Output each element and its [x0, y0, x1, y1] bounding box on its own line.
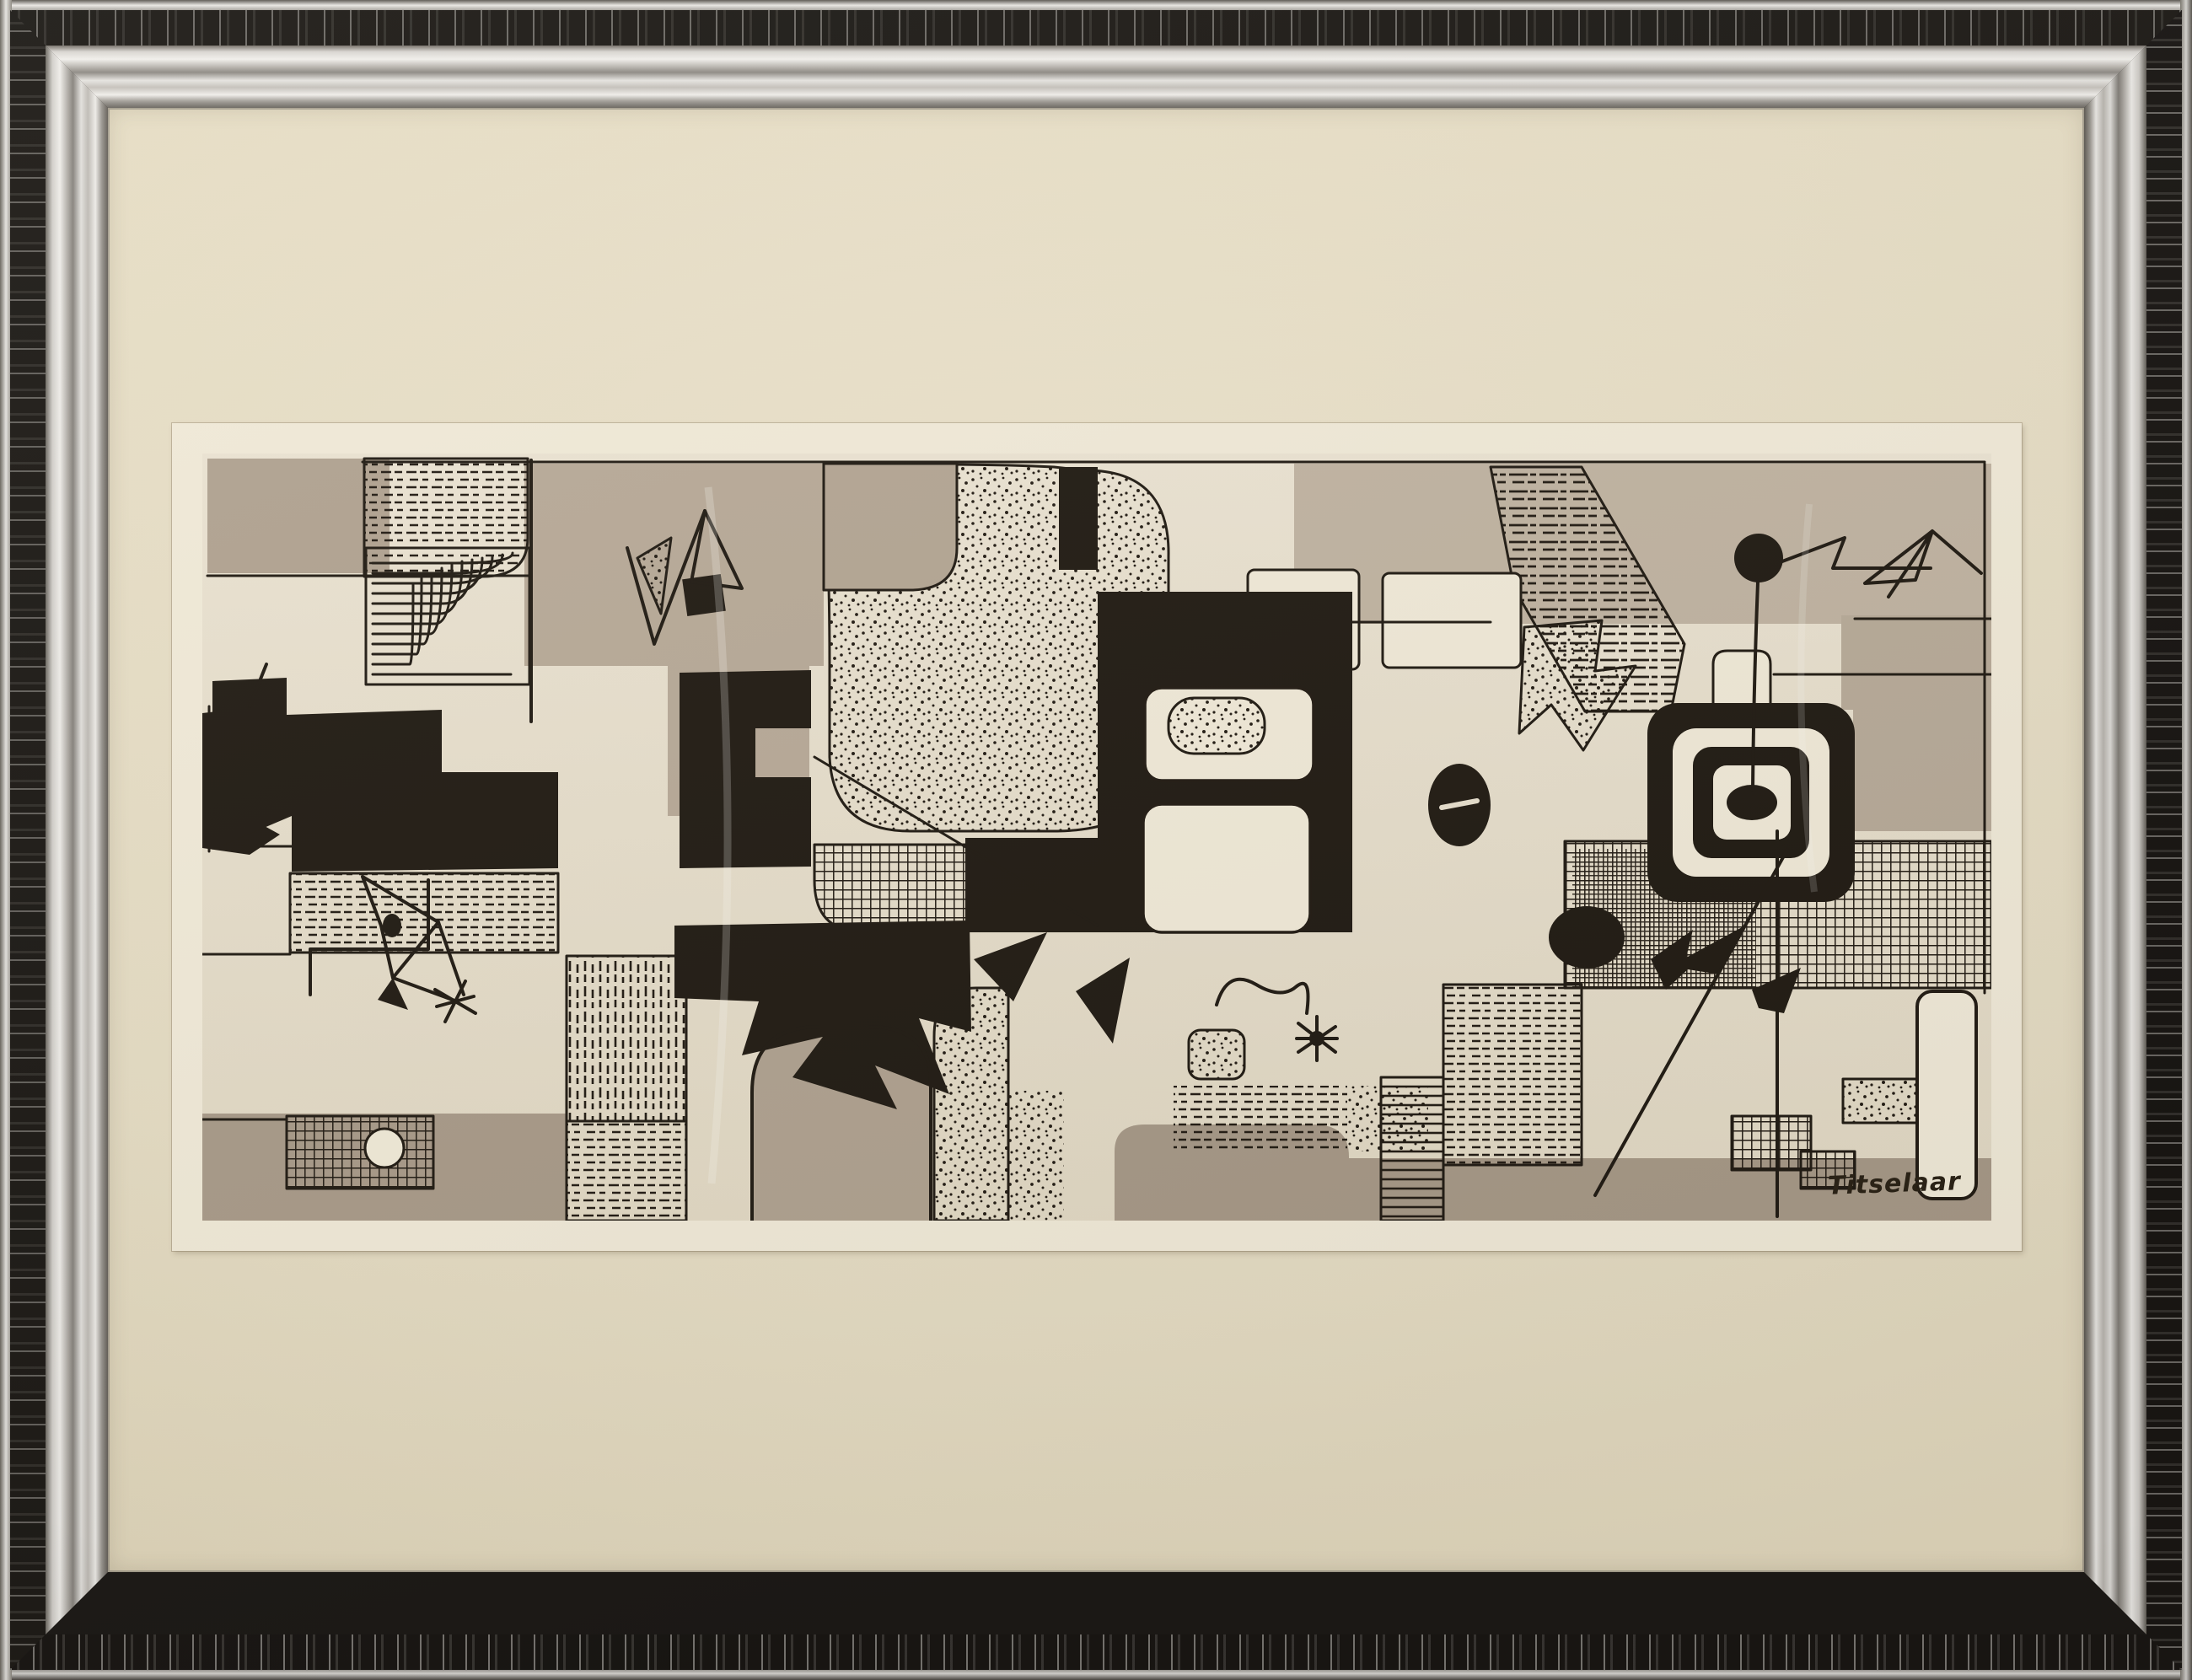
target-rings [1647, 703, 1855, 902]
frame-silver-molding-right [2084, 46, 2146, 1634]
frame-outer-lip-left [0, 0, 12, 1680]
artwork-drawing: Titselaar [202, 454, 1991, 1221]
framed-artwork-photo: Titselaar [0, 0, 2192, 1680]
artist-signature: Titselaar [1828, 1167, 1962, 1200]
frame-dark-band-top [10, 10, 2182, 46]
frame-outer-lip-top [0, 0, 2192, 12]
frame-dark-band-bottom [10, 1634, 2182, 1670]
frame-outer-lip-right [2180, 0, 2192, 1680]
frame-silver-molding-top [46, 46, 2146, 108]
frame-silver-molding-bottom [46, 1572, 2146, 1634]
ink-drawing-svg [202, 454, 1991, 1221]
frame-outer-lip-bottom [0, 1668, 2192, 1680]
frame-dark-band-right [2146, 10, 2182, 1670]
frame-silver-molding-left [46, 46, 108, 1634]
frame-dark-band-left [10, 10, 46, 1670]
ink-ball [1734, 534, 1783, 582]
